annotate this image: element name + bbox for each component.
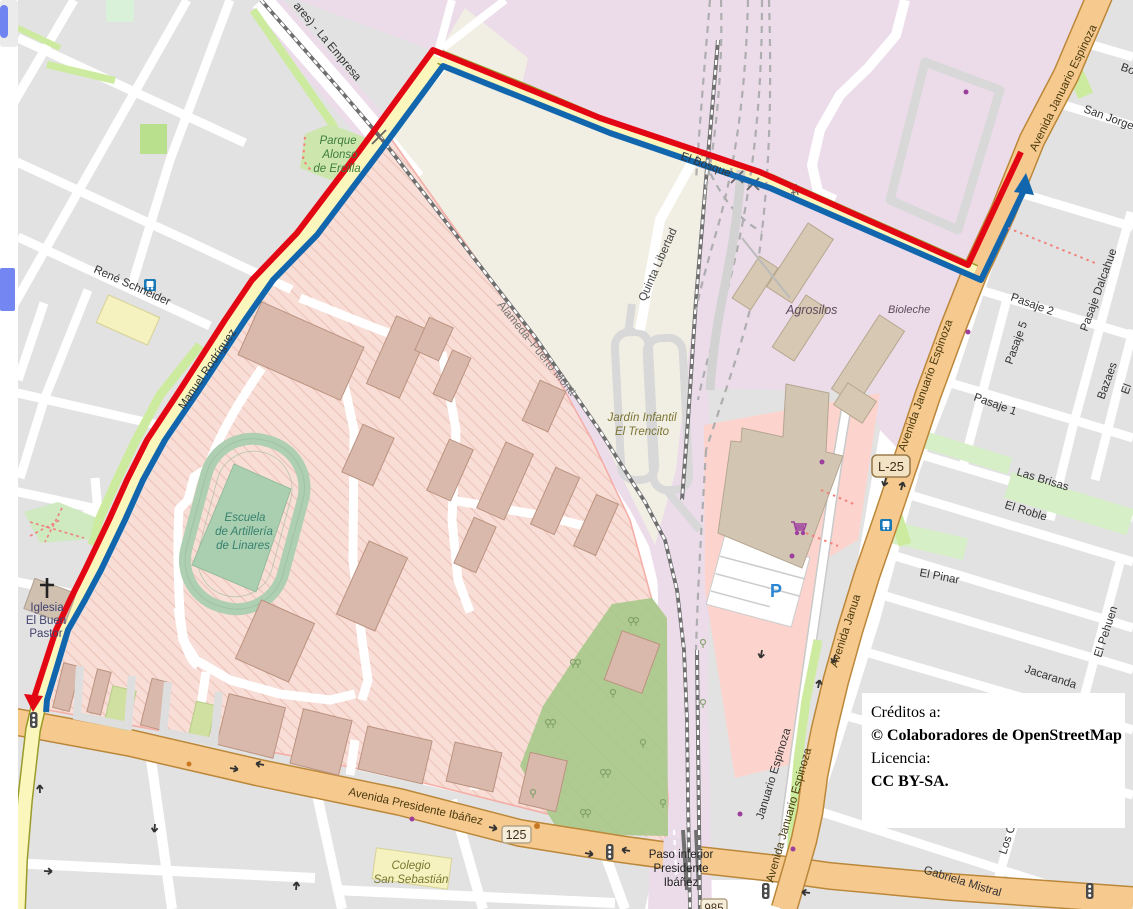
svg-text:de Artillería: de Artillería bbox=[215, 526, 273, 538]
svg-text:de Linares: de Linares bbox=[216, 540, 270, 552]
svg-text:Iglesia: Iglesia bbox=[30, 602, 64, 614]
svg-text:Escuela: Escuela bbox=[225, 512, 266, 524]
svg-text:El Trencito: El Trencito bbox=[615, 426, 670, 438]
svg-text:P: P bbox=[770, 581, 782, 601]
svg-text:125: 125 bbox=[506, 828, 527, 842]
svg-text:CC BY-SA.: CC BY-SA. bbox=[871, 773, 949, 790]
svg-text:985: 985 bbox=[704, 903, 723, 909]
svg-text:Ibáñez: Ibáñez bbox=[664, 877, 699, 889]
svg-text:Pastor: Pastor bbox=[29, 628, 62, 640]
svg-text:El Buen: El Buen bbox=[26, 615, 66, 627]
svg-text:Alonso: Alonso bbox=[321, 149, 358, 161]
svg-text:© Colaboradores de OpenStreetM: © Colaboradores de OpenStreetMap bbox=[871, 727, 1122, 744]
svg-text:Créditos a:: Créditos a: bbox=[871, 704, 941, 721]
svg-text:Licencia:: Licencia: bbox=[871, 750, 931, 767]
svg-text:Parque: Parque bbox=[319, 135, 356, 147]
svg-text:Bioleche: Bioleche bbox=[888, 304, 930, 316]
svg-text:Jardín Infantil: Jardín Infantil bbox=[606, 412, 676, 424]
svg-text:Paso inferior: Paso inferior bbox=[649, 849, 714, 861]
svg-text:San Sebastián: San Sebastián bbox=[374, 874, 449, 886]
svg-text:Agrosilos: Agrosilos bbox=[785, 303, 837, 317]
svg-text:Presidente: Presidente bbox=[654, 863, 709, 875]
svg-text:de Ercilla: de Ercilla bbox=[313, 163, 360, 175]
svg-text:Colegio: Colegio bbox=[392, 860, 432, 872]
svg-text:L-25: L-25 bbox=[878, 459, 904, 474]
